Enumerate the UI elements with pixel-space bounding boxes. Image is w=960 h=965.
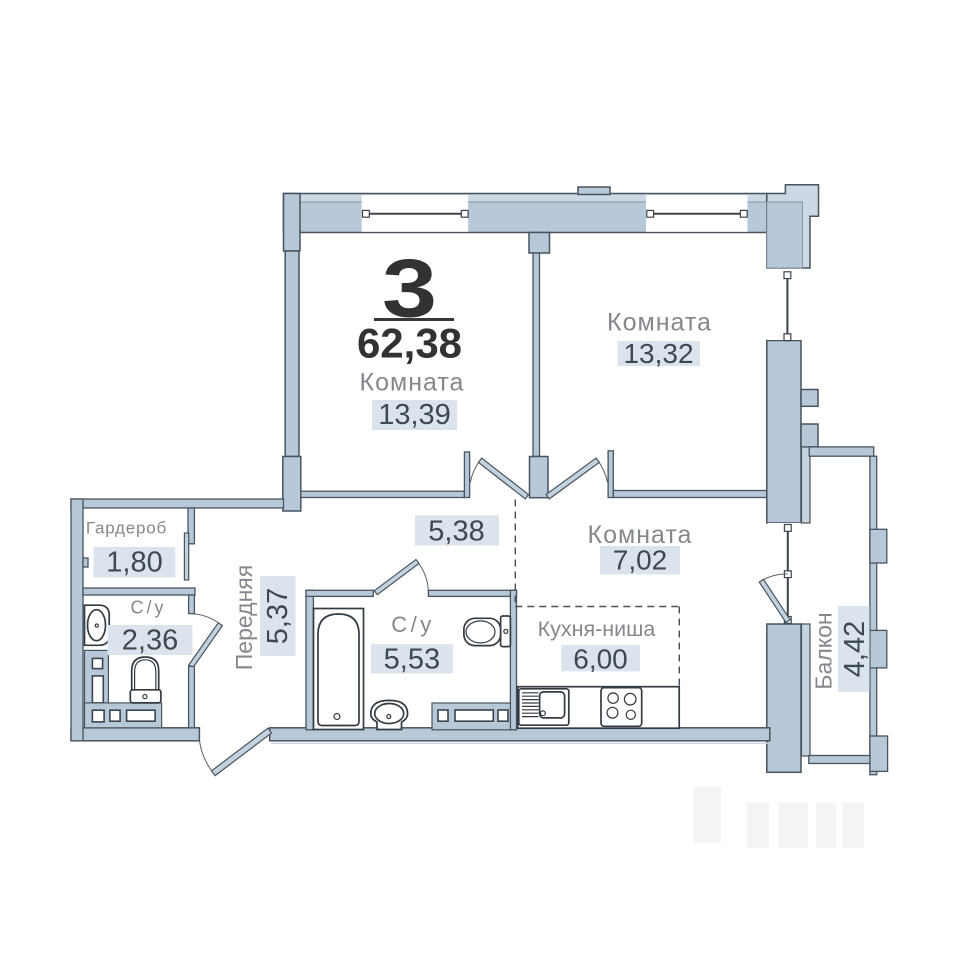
svg-text:6,00: 6,00: [573, 644, 628, 675]
svg-text:С/у: С/у: [391, 612, 435, 637]
svg-text:13,39: 13,39: [378, 399, 451, 431]
svg-text:Комната: Комната: [607, 309, 712, 337]
svg-text:Гардероб: Гардероб: [86, 519, 167, 538]
svg-text:5,37: 5,37: [262, 588, 294, 644]
svg-text:4,42: 4,42: [839, 621, 871, 677]
svg-text:Комната: Комната: [360, 369, 465, 397]
svg-text:Передняя: Передняя: [231, 565, 257, 670]
svg-text:С/у: С/у: [131, 598, 167, 618]
svg-text:5,38: 5,38: [428, 516, 484, 548]
svg-text:5,53: 5,53: [384, 644, 440, 676]
svg-text:1,80: 1,80: [106, 547, 162, 579]
svg-text:Кухня-ниша: Кухня-ниша: [538, 617, 656, 641]
svg-text:7,02: 7,02: [613, 545, 668, 576]
svg-text:Балкон: Балкон: [811, 612, 837, 689]
svg-text:62,38: 62,38: [357, 320, 462, 367]
svg-text:13,32: 13,32: [623, 338, 693, 369]
svg-text:2,36: 2,36: [122, 625, 178, 657]
